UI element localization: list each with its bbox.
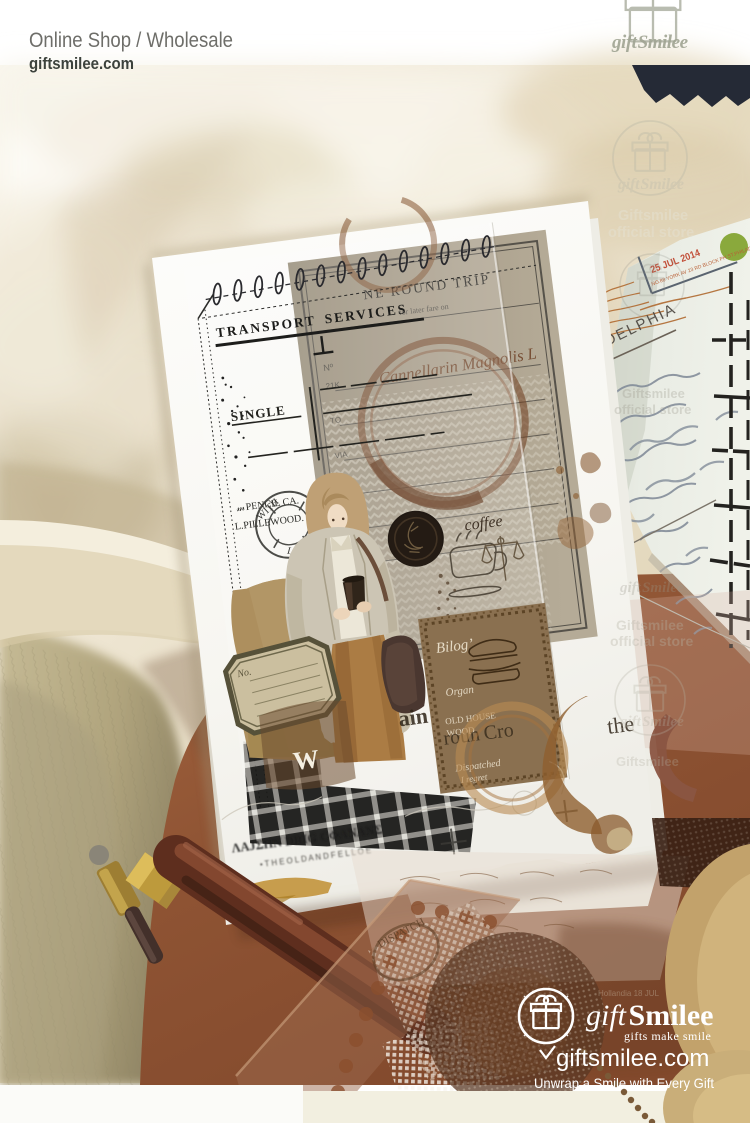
svg-text:gift Smilee: gift Smilee (619, 714, 684, 730)
svg-text:Online Shop / Wholesale: Online Shop / Wholesale (29, 29, 233, 52)
svg-text:gift Smilee: gift Smilee (586, 999, 714, 1032)
svg-text:Giftsmilee: Giftsmilee (618, 208, 688, 224)
svg-text:Giftsmilee: Giftsmilee (616, 617, 684, 633)
svg-text:gift Smilee: gift Smilee (617, 176, 684, 193)
svg-text:Unwrap a Smile with Every Gift: Unwrap a Smile with Every Gift (534, 1075, 714, 1091)
svg-text:official store: official store (608, 225, 694, 241)
svg-text:ain: ain (397, 703, 429, 732)
svg-text:W: W (291, 744, 320, 776)
svg-text:official store: official store (610, 633, 693, 649)
svg-text:Giftsmilee: Giftsmilee (622, 386, 685, 401)
svg-text:giftsmilee.com: giftsmilee.com (29, 55, 134, 73)
svg-text:giftsmilee.com: giftsmilee.com (556, 1045, 709, 1072)
svg-text:official store: official store (614, 402, 691, 417)
svg-text:Hollandia 18 JUL: Hollandia 18 JUL (598, 989, 659, 998)
svg-text:gifts make smile: gifts make smile (624, 1029, 711, 1043)
svg-text:Giftsmilee: Giftsmilee (616, 754, 679, 769)
svg-text:gift Smilee: gift Smilee (611, 32, 689, 53)
svg-text:gift Smilee: gift Smilee (619, 580, 684, 596)
